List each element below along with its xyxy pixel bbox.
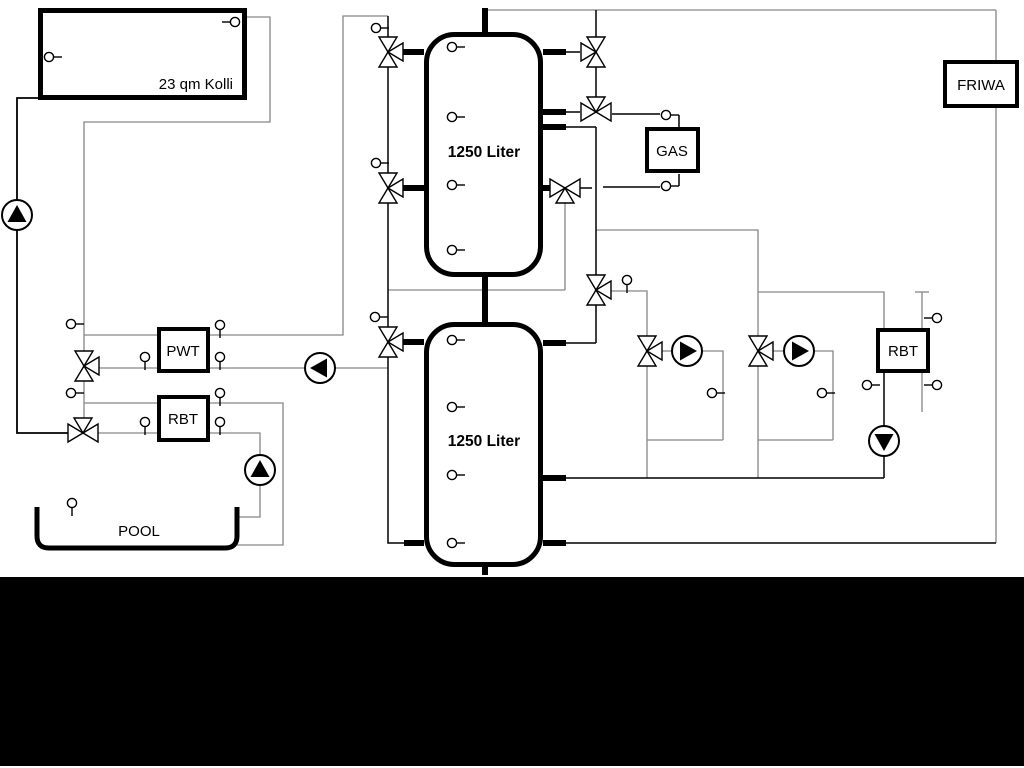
hydraulic-schematic: 23 qm Kolli 1250 Liter 1250 Liter GAS FR… <box>0 0 1024 768</box>
pipe-pool-pump-in <box>210 433 260 455</box>
bottom-bar <box>0 577 1024 766</box>
friwa-label: FRIWA <box>957 77 1005 94</box>
three-way-valve-icon <box>75 351 99 381</box>
three-way-valve-icon <box>587 275 611 305</box>
pump-icon-circuit1 <box>672 336 702 366</box>
three-way-valve-icon <box>550 179 580 203</box>
sensor-icon <box>66 319 84 328</box>
sensor-icon <box>371 158 389 167</box>
pipe-valve-column-4 <box>388 356 404 543</box>
sensor-icon <box>661 110 679 119</box>
three-way-valve-icon <box>581 97 611 121</box>
schematic-canvas: 23 qm Kolli 1250 Liter 1250 Liter GAS FR… <box>0 0 1024 768</box>
pump-icon-circuit2 <box>784 336 814 366</box>
rbt-left-label: RBT <box>168 411 198 428</box>
pool-label: POOL <box>118 523 160 540</box>
pipe-pool-pump-out <box>237 486 260 517</box>
pump-icon-rbt-right <box>869 426 899 456</box>
sensor-icon <box>66 388 84 397</box>
sensor-icon <box>862 380 880 389</box>
tank-bottom-label: 1250 Liter <box>448 433 520 450</box>
three-way-valve-icon <box>379 37 403 67</box>
three-way-valve-icon <box>749 336 773 366</box>
pump-icon-pwt <box>305 353 335 383</box>
sensor-icon <box>924 313 942 322</box>
three-way-valve-icon <box>379 173 403 203</box>
three-way-valve-icon <box>581 37 605 67</box>
sensor-icon <box>370 312 388 321</box>
three-way-valve-icon <box>638 336 662 366</box>
sensor-icon <box>371 23 389 32</box>
pipe-rbt-right-feed <box>758 292 884 328</box>
pipe-right-header <box>596 230 758 336</box>
sensor-icon <box>67 498 76 516</box>
gas-label: GAS <box>656 143 688 160</box>
sensor-icon <box>924 380 942 389</box>
rbt-right-label: RBT <box>888 343 918 360</box>
three-way-valve-icon <box>379 327 403 357</box>
tank-top-label: 1250 Liter <box>448 144 520 161</box>
pipe-solar-loop <box>17 98 68 433</box>
sensor-icon <box>661 181 679 190</box>
pump-icon-solar <box>2 200 32 230</box>
pump-icon-pool <box>245 455 275 485</box>
pwt-label: PWT <box>166 343 199 360</box>
three-way-valve-icon <box>68 418 98 442</box>
collector-label: 23 qm Kolli <box>159 76 233 93</box>
equipment-boxes <box>37 11 1017 565</box>
pipe-circuit1-feed <box>610 291 647 336</box>
